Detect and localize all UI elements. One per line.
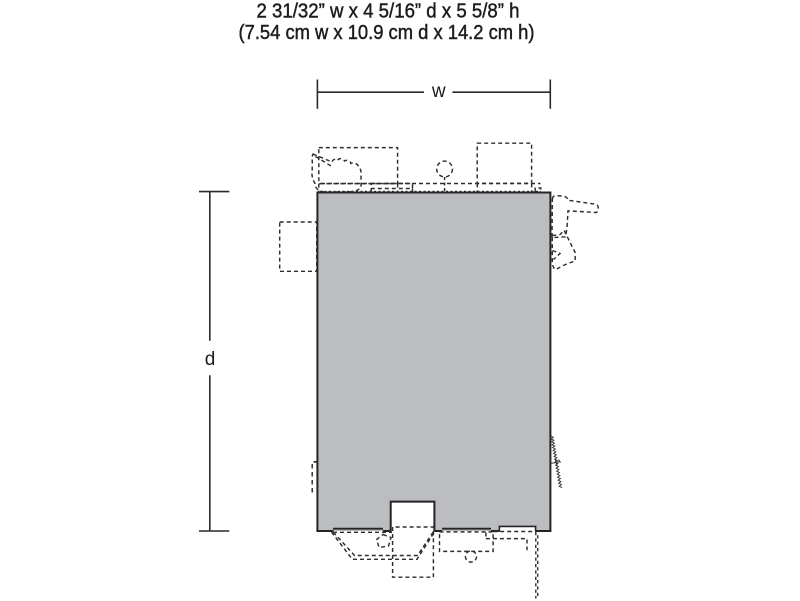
svg-text:(7.54 cm w x 10.9 cm d x 14.2: (7.54 cm w x 10.9 cm d x 14.2 cm h): [239, 22, 535, 44]
svg-text:w: w: [431, 81, 446, 102]
svg-text:2 31/32” w x 4 5/16” d x 5 5/8: 2 31/32” w x 4 5/16” d x 5 5/8” h: [257, 1, 520, 23]
svg-text:d: d: [205, 349, 216, 370]
